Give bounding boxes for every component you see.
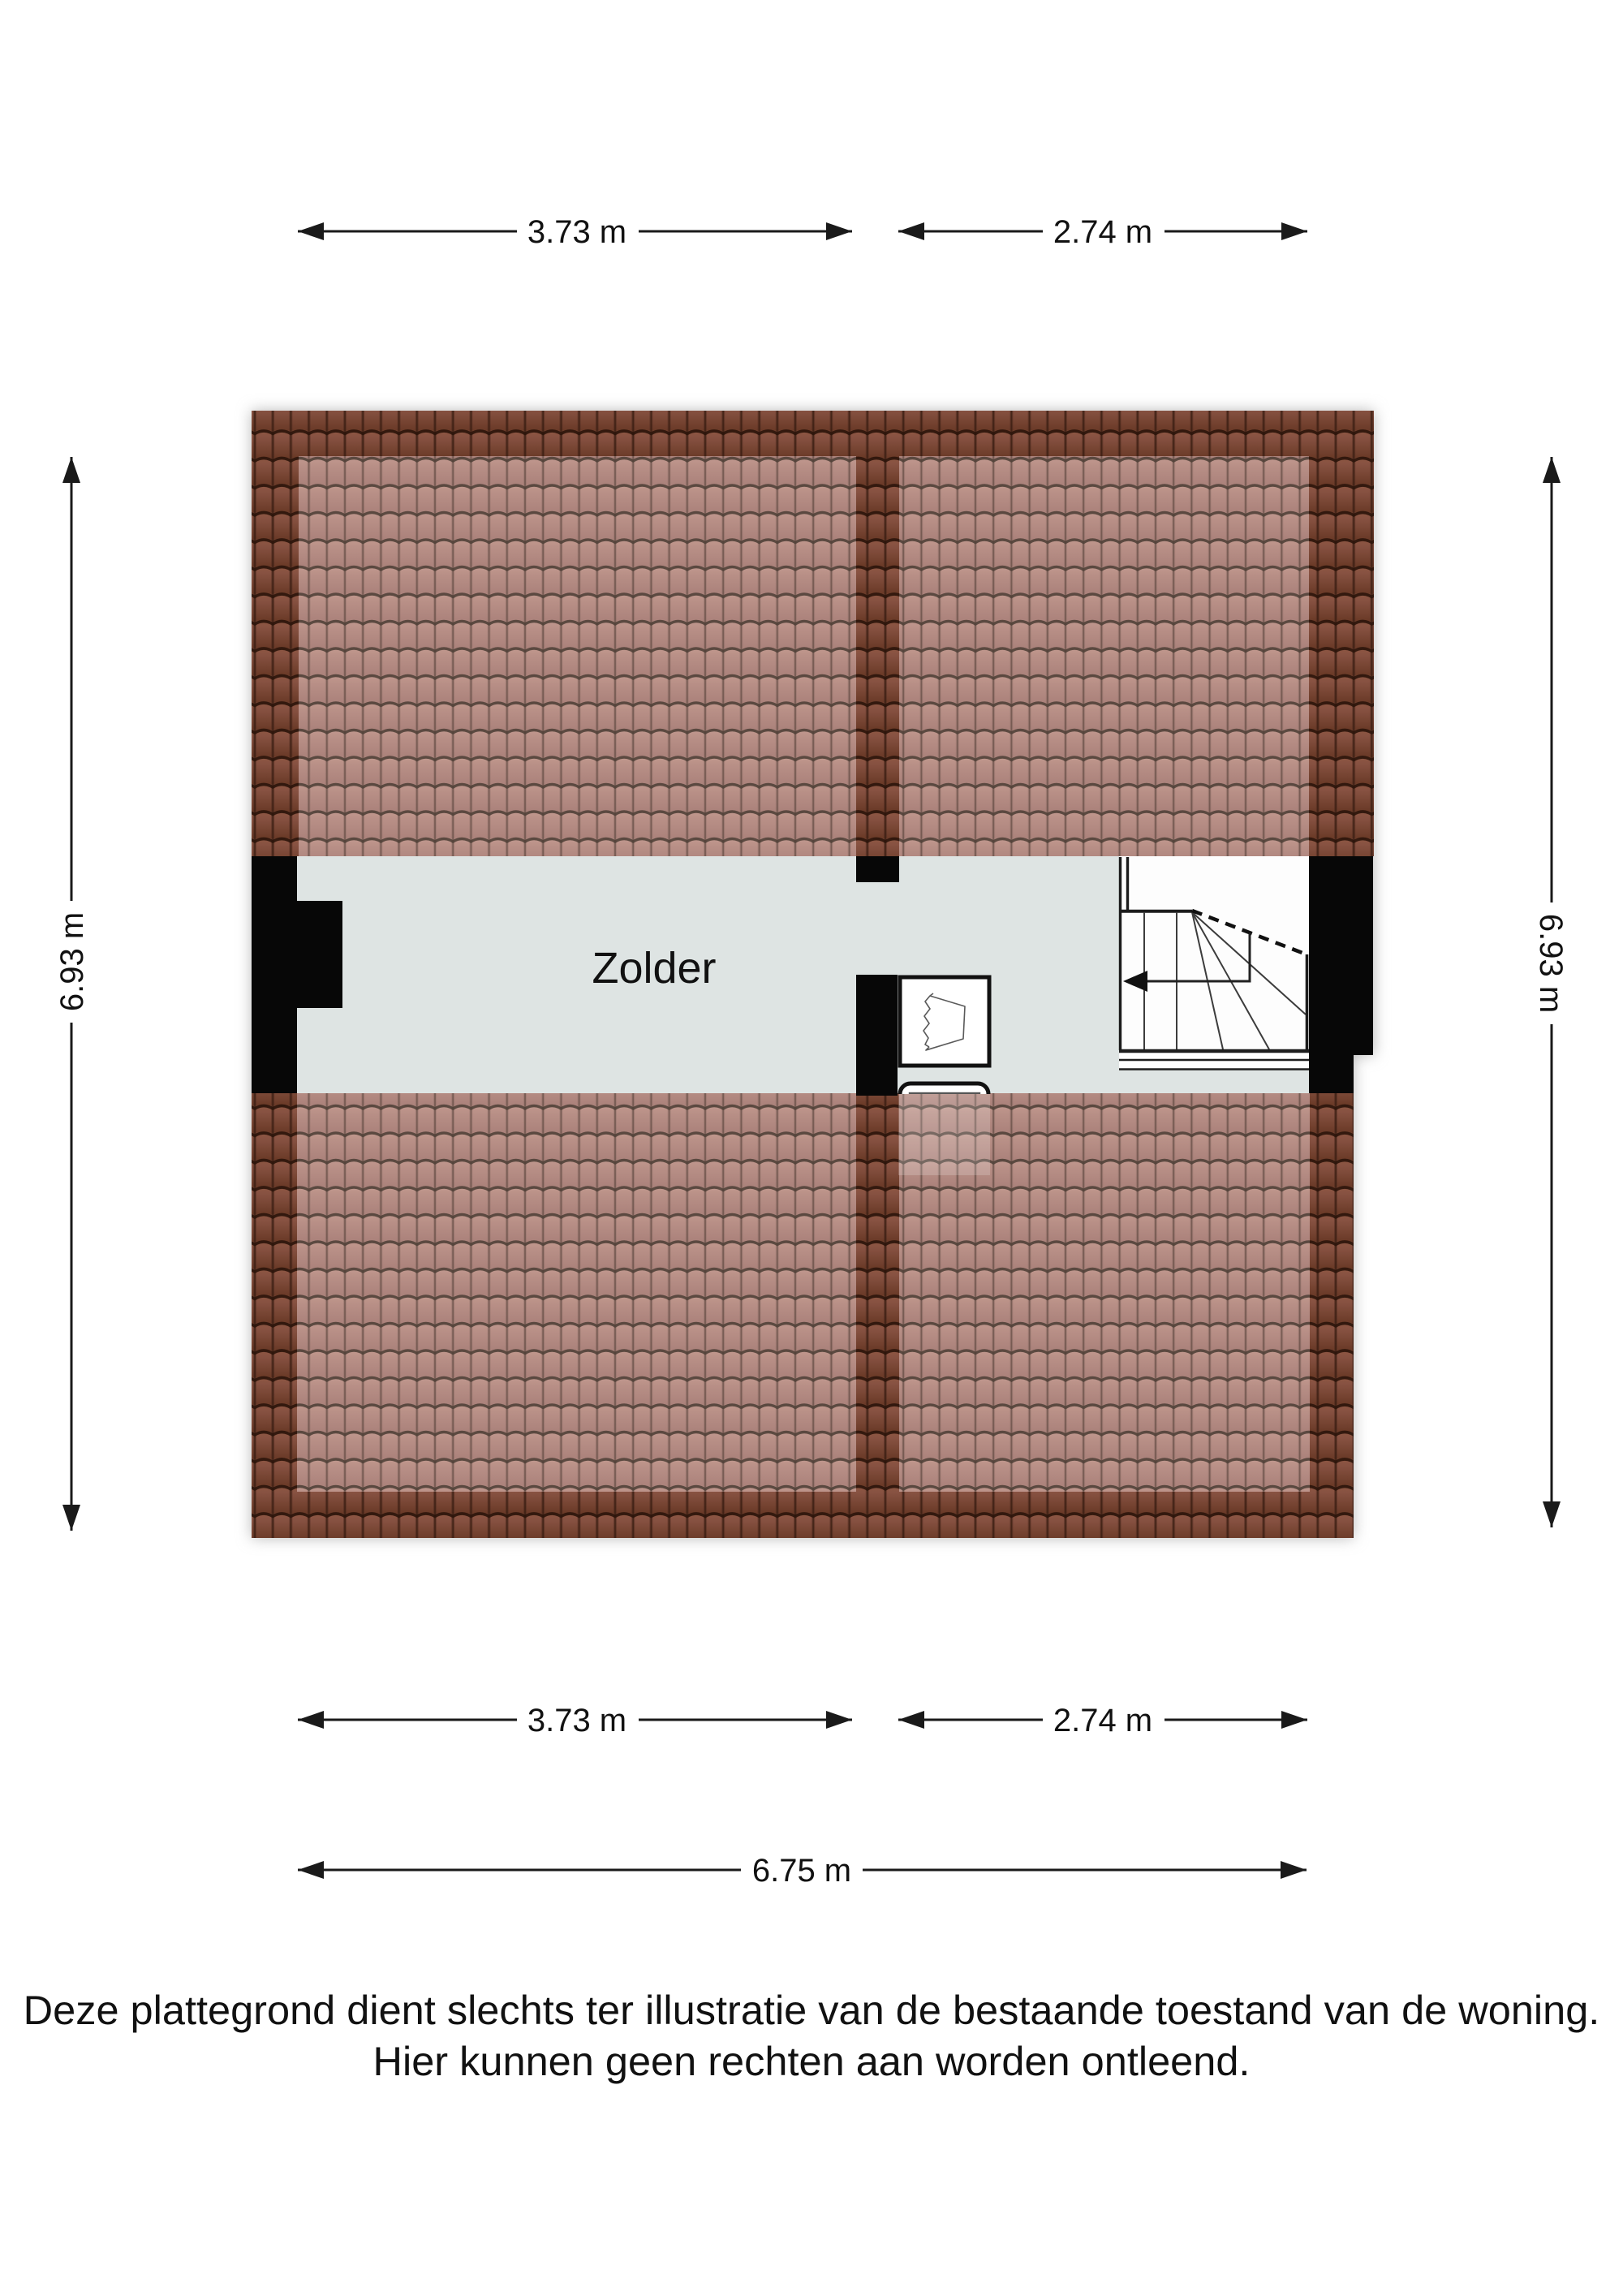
svg-text:3.73 m: 3.73 m	[527, 214, 626, 250]
svg-text:6.75 m: 6.75 m	[752, 1853, 851, 1889]
svg-text:6.93 m: 6.93 m	[54, 912, 90, 1011]
svg-text:Deze plattegrond dient slechts: Deze plattegrond dient slechts ter illus…	[24, 1987, 1600, 2033]
svg-text:6.93 m: 6.93 m	[1533, 914, 1569, 1013]
svg-text:Hier kunnen geen rechten aan w: Hier kunnen geen rechten aan worden ontl…	[373, 2038, 1251, 2084]
svg-text:3.73 m: 3.73 m	[527, 1703, 626, 1738]
svg-text:2.74 m: 2.74 m	[1053, 1703, 1152, 1738]
svg-text:2.74 m: 2.74 m	[1053, 214, 1152, 250]
svg-text:Zolder: Zolder	[592, 944, 716, 993]
